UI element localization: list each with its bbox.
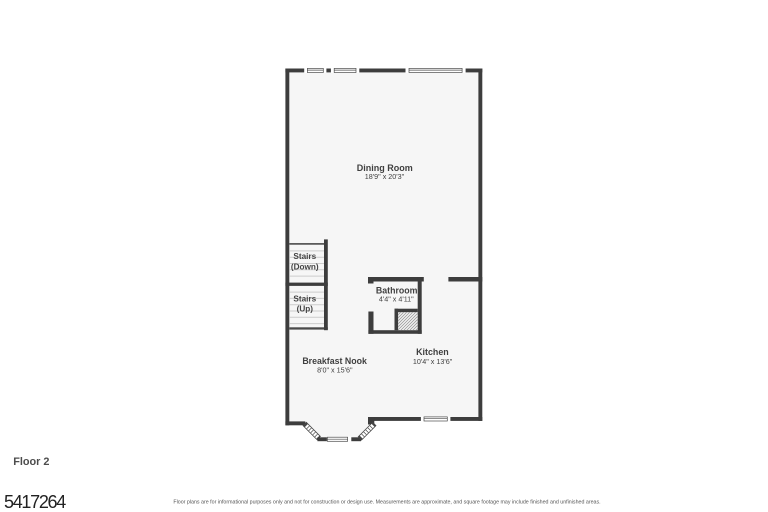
svg-text:10'4" x 13'6": 10'4" x 13'6" [413,357,453,366]
svg-text:18'9" x 20'3": 18'9" x 20'3" [365,172,405,181]
svg-text:(Up): (Up) [297,305,314,314]
svg-text:Stairs: Stairs [293,252,316,261]
svg-text:Kitchen: Kitchen [416,347,449,357]
svg-text:Floor 2: Floor 2 [13,456,49,468]
svg-text:8'0" x 15'6": 8'0" x 15'6" [317,365,353,374]
svg-text:5417264: 5417264 [4,492,66,512]
svg-text:Stairs: Stairs [293,294,316,303]
svg-text:(Down): (Down) [291,263,319,272]
svg-text:4'4" x 4'11": 4'4" x 4'11" [379,294,414,303]
svg-text:Floor plans are for informatio: Floor plans are for informational purpos… [173,500,600,506]
